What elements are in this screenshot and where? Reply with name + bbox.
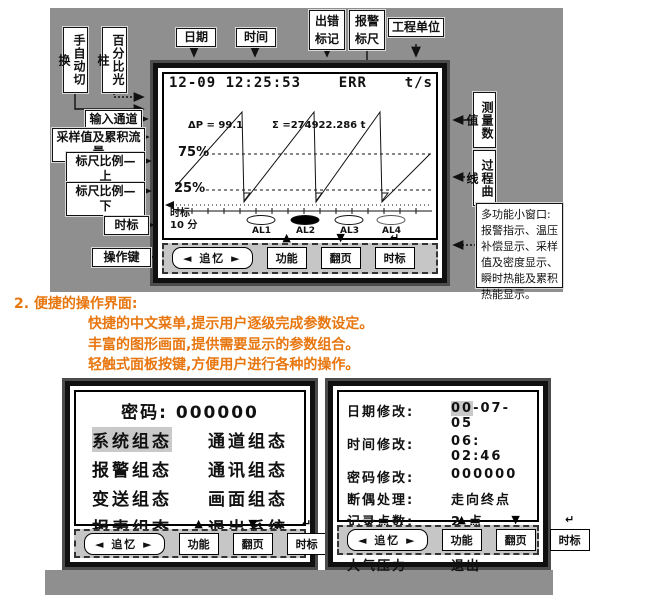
timescale-button[interactable]: 时标 <box>550 529 590 551</box>
callout-multi-window: 多功能小窗口:报警指示、温压补偿显示、采样值及密度显示、瞬时热能及累积热能显示。 <box>476 203 563 288</box>
param-row-pressure[interactable]: 大气压力 退出 <box>347 555 531 574</box>
recall-left-arrow-icon[interactable]: ◄ <box>358 534 368 547</box>
enter-arrow-icon: ↵ <box>302 518 311 529</box>
recall-right-arrow-icon[interactable]: ► <box>143 538 153 551</box>
recorder-screen-menu: 密码: 000000 系统组态 通道组态 报警组态 通讯组态 变送组态 画面组态… <box>62 378 318 570</box>
trend-chart <box>164 74 436 238</box>
password-row: 密码: 000000 <box>76 398 304 423</box>
param-highlight[interactable]: 00 <box>451 401 473 416</box>
timebase-block: 时标 10 分 <box>170 208 197 231</box>
param-value: 退出 <box>451 555 481 574</box>
callout-date: 日期 <box>176 28 216 47</box>
password-value[interactable]: 000000 <box>176 403 259 423</box>
recorder-screen-trend: 12-09 12:25:53 ERR t/s ΔP = 99.1 Σ =2749… <box>150 60 450 286</box>
recall-right-arrow-icon[interactable]: ► <box>231 252 241 265</box>
function-button[interactable]: 功能 <box>179 533 219 555</box>
param-value: 06: 02:46 <box>451 434 531 464</box>
callout-scale-upper: 标尺比例—上 <box>66 152 145 186</box>
alarm-label-al2: AL2 <box>296 226 315 236</box>
callout-input-channel: 输入通道 <box>85 110 142 129</box>
alarm-lamp-al2 <box>291 216 319 225</box>
screen2-display: 密码: 000000 系统组态 通道组态 报警组态 通讯组态 变送组态 画面组态… <box>74 390 306 526</box>
recall-button[interactable]: ◄ 追忆 ► <box>347 529 428 551</box>
section-title: 便捷的操作界面: <box>34 296 138 312</box>
down-arrow-icon: ▼ <box>336 232 344 243</box>
screen3-inner: 日期修改: 00-07-05 时间修改: 06: 02:46 密码修改: 000… <box>333 386 543 562</box>
param-label: 日期修改: <box>347 401 451 431</box>
menu-channel-config[interactable]: 通道组态 <box>208 427 288 452</box>
section-line-1: 快捷的中文菜单,提示用户逐级完成参数设定。 <box>88 314 373 334</box>
timebase-label: 时标 <box>170 208 197 220</box>
callout-process-curve: 过程曲线 <box>473 150 496 206</box>
down-arrow-icon: ▼ <box>511 514 519 525</box>
timescale-button[interactable]: 时标 <box>287 533 327 555</box>
param-row-date[interactable]: 日期修改: 00-07-05 <box>347 401 531 431</box>
callout-operation-keys: 操作键 <box>92 248 151 267</box>
screen2-inner: 密码: 000000 系统组态 通道组态 报警组态 通讯组态 变送组态 画面组态… <box>70 386 310 562</box>
alarm-lamp-al1 <box>247 216 275 225</box>
menu-comm-config[interactable]: 通讯组态 <box>208 456 288 481</box>
section-text: 2. 便捷的操作界面: 快捷的中文菜单,提示用户逐级完成参数设定。 丰富的图形画… <box>14 294 373 375</box>
menu-transmit-config[interactable]: 变送组态 <box>92 485 172 510</box>
param-value: 走向终点 <box>451 489 511 508</box>
function-button[interactable]: 功能 <box>267 247 307 269</box>
menu-alarm-config[interactable]: 报警组态 <box>92 456 172 481</box>
up-arrow-icon: ▲ <box>194 518 202 529</box>
callout-percent-bar: 百分比光柱 <box>102 27 127 93</box>
alarm-lamp-al4 <box>377 216 405 225</box>
function-button[interactable]: 功能 <box>442 529 482 551</box>
recall-label: 追忆 <box>111 538 137 551</box>
callout-scale-lower: 标尺比例—下 <box>66 182 145 216</box>
param-label: 密码修改: <box>347 467 451 486</box>
up-arrow-icon: ▲ <box>282 232 290 243</box>
page-button[interactable]: 翻页 <box>321 247 361 269</box>
down-arrow-icon: ▼ <box>248 518 256 529</box>
recall-left-arrow-icon[interactable]: ◄ <box>183 252 193 265</box>
alarm-label-al1: AL1 <box>252 226 271 236</box>
param-label: 大气压力 <box>347 555 451 574</box>
recall-label: 追忆 <box>199 252 225 265</box>
callout-error-mark: 出错标记 <box>309 10 345 50</box>
screen2-keypad: ◄ 追忆 ► ▲功能 ▼翻页 ↵时标 <box>74 529 306 558</box>
param-label: 时间修改: <box>347 434 451 464</box>
callout-manual-auto: 手自动切换 <box>63 27 88 93</box>
callout-time: 时间 <box>236 28 276 47</box>
up-arrow-icon: ▲ <box>457 514 465 525</box>
param-value: 000000 <box>451 467 517 486</box>
param-row-burnout[interactable]: 断偶处理: 走向终点 <box>347 489 531 508</box>
screen1-display: 12-09 12:25:53 ERR t/s ΔP = 99.1 Σ =2749… <box>162 72 438 240</box>
page-button[interactable]: 翻页 <box>233 533 273 555</box>
password-label: 密码: <box>121 403 168 423</box>
param-label: 断偶处理: <box>347 489 451 508</box>
recall-label: 追忆 <box>374 534 400 547</box>
recall-button[interactable]: ◄ 追忆 ► <box>172 247 253 269</box>
param-row-time[interactable]: 时间修改: 06: 02:46 <box>347 434 531 464</box>
timebase-value: 10 分 <box>170 220 197 232</box>
manual-page: 手自动切换 百分比光柱 日期 时间 出错标记 报警标尺 工程单位 输入通道 采样… <box>0 0 655 595</box>
enter-arrow-icon: ↵ <box>390 232 399 243</box>
recall-right-arrow-icon[interactable]: ► <box>406 534 416 547</box>
section-line-3: 轻触式面板按键,方便用户进行各种的操作。 <box>88 355 373 375</box>
screen1-keypad: ◄ 追忆 ► ▲功能 ▼翻页 ↵时标 <box>162 243 438 274</box>
page-button[interactable]: 翻页 <box>496 529 536 551</box>
menu-system-config[interactable]: 系统组态 <box>92 427 172 452</box>
menu-picture-config[interactable]: 画面组态 <box>208 485 288 510</box>
screen3-display: 日期修改: 00-07-05 时间修改: 06: 02:46 密码修改: 000… <box>337 390 539 522</box>
section-line-2: 丰富的图形画面,提供需要显示的参数组合。 <box>88 335 373 355</box>
section-number: 2. <box>14 296 29 312</box>
callout-measure-value: 测量数值 <box>473 92 496 148</box>
recall-left-arrow-icon[interactable]: ◄ <box>95 538 105 551</box>
alarm-lamp-al3 <box>335 216 363 225</box>
param-row-password[interactable]: 密码修改: 000000 <box>347 467 531 486</box>
timescale-button[interactable]: 时标 <box>375 247 415 269</box>
recorder-screen-params: 日期修改: 00-07-05 时间修改: 06: 02:46 密码修改: 000… <box>325 378 551 570</box>
enter-arrow-icon: ↵ <box>565 514 574 525</box>
recall-button[interactable]: ◄ 追忆 ► <box>84 533 165 555</box>
screen1-inner: 12-09 12:25:53 ERR t/s ΔP = 99.1 Σ =2749… <box>158 68 442 278</box>
screen3-keypad: ◄ 追忆 ► ▲功能 ▼翻页 ↵时标 <box>337 525 539 555</box>
callout-engineering-unit: 工程单位 <box>388 18 444 37</box>
callout-time-mark: 时标 <box>104 216 149 235</box>
callout-alarm-scale: 报警标尺 <box>349 10 385 50</box>
